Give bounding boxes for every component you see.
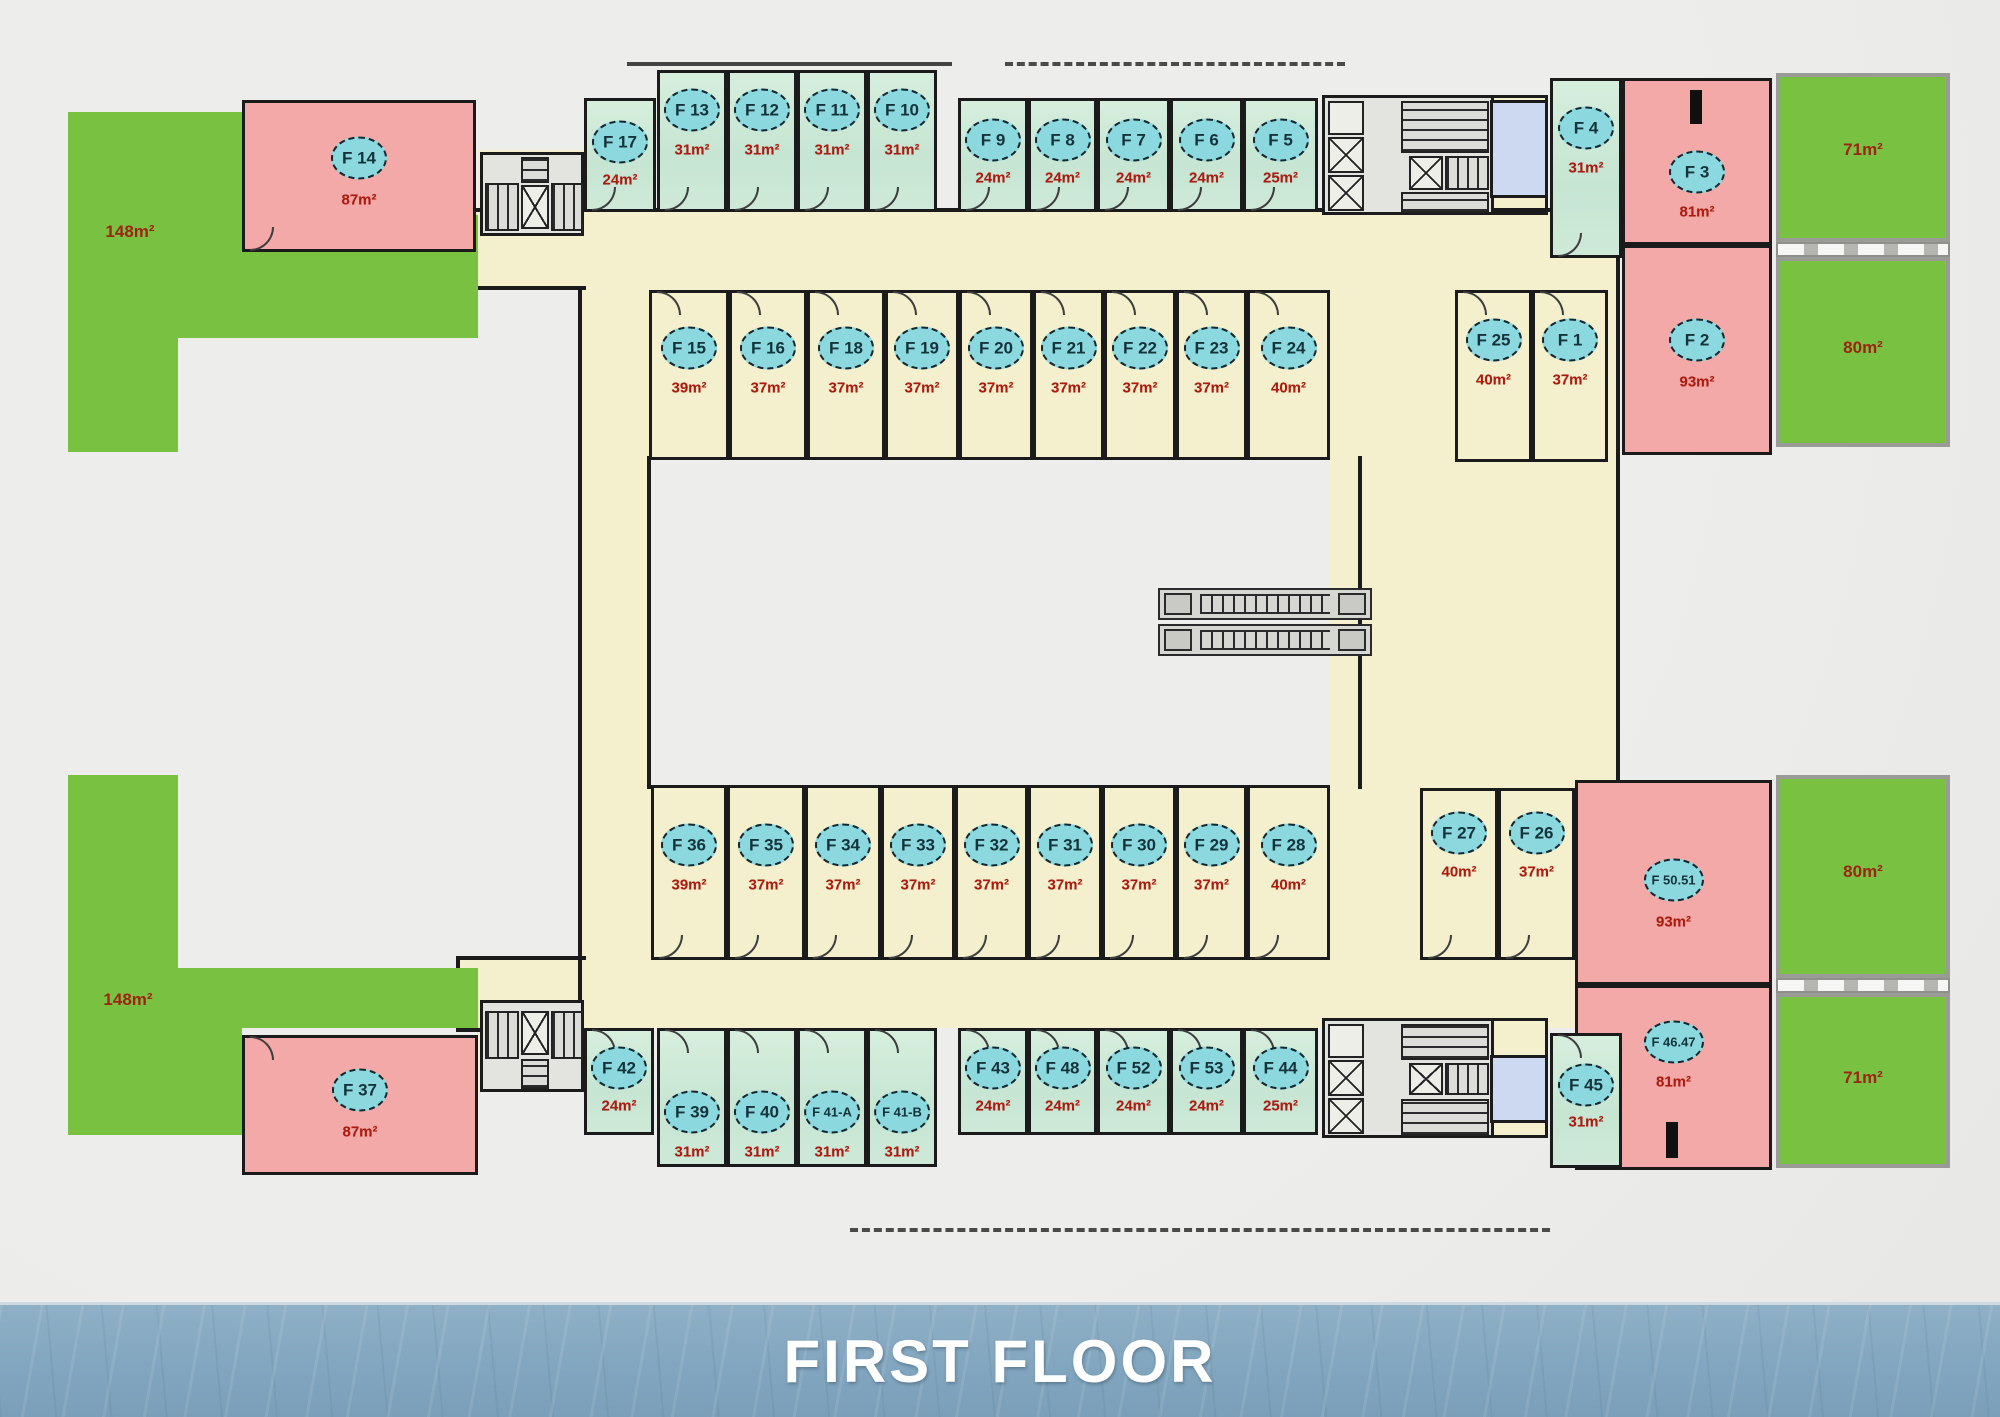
door-arc-icon <box>889 935 913 959</box>
stairs-icon <box>485 183 519 231</box>
unit-area-F18: 37m² <box>828 380 863 397</box>
door-arc-icon <box>1036 187 1060 211</box>
escalator-landing <box>1164 629 1192 651</box>
stairs-icon <box>1445 1063 1489 1095</box>
room-F31 <box>1028 785 1102 960</box>
unit-badge-F7: F 7 <box>1106 119 1162 162</box>
stairs-icon <box>1401 192 1489 213</box>
unit-badge-F18: F 18 <box>818 327 874 370</box>
service-room-top <box>1490 100 1548 198</box>
door-arc-icon <box>815 291 839 315</box>
unit-area-F11: 31m² <box>814 142 849 159</box>
unit-area-F41-B: 31m² <box>884 1144 919 1161</box>
elevator-icon <box>1328 175 1364 211</box>
wall-segment <box>456 956 586 960</box>
elevator-icon <box>521 185 549 229</box>
unit-area-F5: 25m² <box>1263 170 1298 187</box>
unit-area-F31: 37m² <box>1047 877 1082 894</box>
unit-badge-F16: F 16 <box>740 327 796 370</box>
elevator-shaft-icon <box>1328 1024 1364 1058</box>
room-F23 <box>1176 290 1247 460</box>
unit-badge-F43: F 43 <box>965 1047 1021 1090</box>
unit-area-F10: 31m² <box>884 142 919 159</box>
door-arc-icon <box>893 291 917 315</box>
room-F19 <box>885 290 959 460</box>
unit-area-F53: 24m² <box>1189 1098 1224 1115</box>
door-arc-icon <box>1255 291 1279 315</box>
unit-badge-F31: F 31 <box>1037 824 1093 867</box>
door-arc-icon <box>966 187 990 211</box>
room-F24 <box>1247 290 1330 460</box>
wall-pier <box>1690 90 1702 124</box>
unit-area-F35: 37m² <box>748 877 783 894</box>
balcony-divider <box>1776 978 1950 993</box>
unit-badge-F11: F 11 <box>804 89 860 132</box>
unit-area-F20: 37m² <box>978 380 1013 397</box>
wall-pier <box>1666 1122 1678 1158</box>
unit-badge-F21: F 21 <box>1040 327 1096 370</box>
service-room-bottom <box>1490 1055 1548 1123</box>
unit-area-F9: 24m² <box>975 170 1010 187</box>
unit-area-F40: 31m² <box>744 1144 779 1161</box>
elevator-icon <box>1409 156 1443 190</box>
unit-badge-F41-B: F 41-B <box>874 1091 930 1134</box>
stairs-icon <box>551 1011 583 1059</box>
floor-plan-canvas: 148m²148m²71m²80m²80m²71m²F 1487m²F 3787… <box>0 0 2000 1414</box>
room-F36 <box>651 785 727 960</box>
unit-badge-F8: F 8 <box>1035 119 1091 162</box>
page-title: FIRST FLOOR <box>784 1327 1217 1396</box>
unit-badge-F44: F 44 <box>1252 1047 1308 1090</box>
stairs-icon <box>485 1011 519 1059</box>
unit-badge-F9: F 9 <box>965 119 1021 162</box>
unit-area-F16: 37m² <box>750 380 785 397</box>
elevator-icon <box>1328 1098 1364 1134</box>
stair-core-bottom-left <box>480 1000 584 1092</box>
unit-area-F30: 37m² <box>1121 877 1156 894</box>
terrace-bottom-right-80-area-label: 80m² <box>1843 862 1883 882</box>
room-F29 <box>1176 785 1247 960</box>
escalator-landing <box>1164 593 1192 615</box>
unit-area-F17: 24m² <box>602 172 637 189</box>
unit-badge-F12: F 12 <box>734 89 790 132</box>
unit-badge-F4: F 4 <box>1558 107 1614 150</box>
terrace-top-left-area-label: 148m² <box>105 222 154 242</box>
door-arc-icon <box>1112 291 1136 315</box>
unit-badge-F37: F 37 <box>332 1069 388 1112</box>
escalator-landing <box>1338 629 1366 651</box>
unit-area-F52: 24m² <box>1116 1098 1151 1115</box>
terrace-bottom-left-area-label: 148m² <box>103 990 152 1010</box>
unit-area-F7: 24m² <box>1116 170 1151 187</box>
door-arc-icon <box>875 1029 899 1053</box>
escalator-steps <box>1200 594 1330 614</box>
unit-badge-F6: F 6 <box>1179 119 1235 162</box>
wall-segment <box>578 288 582 1032</box>
unit-badge-F15: F 15 <box>661 327 717 370</box>
unit-badge-F53: F 53 <box>1178 1047 1234 1090</box>
unit-area-F28: 40m² <box>1271 877 1306 894</box>
unit-area-F50.51: 93m² <box>1656 914 1691 931</box>
unit-area-F14: 87m² <box>341 192 376 209</box>
room-F32 <box>955 785 1028 960</box>
elevator-icon <box>521 1011 549 1055</box>
door-arc-icon <box>735 1029 759 1053</box>
terrace-top-right-80-area-label: 80m² <box>1843 338 1883 358</box>
unit-badge-F50.51: F 50.51 <box>1643 859 1703 902</box>
unit-badge-F25: F 25 <box>1465 319 1521 362</box>
stairs-icon <box>521 1059 549 1089</box>
door-arc-icon <box>735 187 759 211</box>
unit-area-F33: 37m² <box>900 877 935 894</box>
door-arc-icon <box>657 291 681 315</box>
unit-badge-F32: F 32 <box>963 824 1019 867</box>
unit-area-F41-A: 31m² <box>814 1144 849 1161</box>
door-arc-icon <box>665 1029 689 1053</box>
escalators <box>1158 588 1372 658</box>
door-arc-icon <box>963 935 987 959</box>
stair-core-top-left <box>480 152 584 236</box>
terrace-top-right-71-area-label: 71m² <box>1843 140 1883 160</box>
unit-badge-F24: F 24 <box>1260 327 1316 370</box>
door-arc-icon <box>1184 291 1208 315</box>
unit-area-F29: 37m² <box>1194 877 1229 894</box>
unit-area-F37: 87m² <box>342 1124 377 1141</box>
unit-badge-F33: F 33 <box>890 824 946 867</box>
unit-area-F1: 37m² <box>1552 372 1587 389</box>
room-F15 <box>649 290 729 460</box>
door-arc-icon <box>1558 1034 1582 1058</box>
escalator-steps <box>1200 630 1330 650</box>
escalator-icon <box>1158 624 1372 656</box>
unit-badge-F34: F 34 <box>815 824 871 867</box>
door-arc-icon <box>805 1029 829 1053</box>
door-arc-icon <box>1105 187 1129 211</box>
elevator-shaft-icon <box>1328 101 1364 135</box>
unit-area-F13: 31m² <box>674 142 709 159</box>
room-F34 <box>805 785 881 960</box>
unit-area-F46.47: 81m² <box>1656 1074 1691 1091</box>
balcony-divider <box>1776 242 1950 257</box>
unit-area-F3: 81m² <box>1679 204 1714 221</box>
stairs-icon <box>1401 1099 1489 1136</box>
room-F30 <box>1102 785 1176 960</box>
unit-badge-F17: F 17 <box>592 121 648 164</box>
unit-area-F32: 37m² <box>974 877 1009 894</box>
elevator-icon <box>1328 1060 1364 1096</box>
unit-area-F26: 37m² <box>1519 864 1554 881</box>
unit-area-F4: 31m² <box>1568 160 1603 177</box>
room-F18 <box>807 290 885 460</box>
elevator-icon <box>1409 1063 1443 1095</box>
unit-area-F8: 24m² <box>1045 170 1080 187</box>
room-F28 <box>1247 785 1330 960</box>
unit-area-F42: 24m² <box>601 1098 636 1115</box>
room-F21 <box>1033 290 1104 460</box>
unit-area-F48: 24m² <box>1045 1098 1080 1115</box>
door-arc-icon <box>1041 291 1065 315</box>
unit-badge-F41-A: F 41-A <box>804 1091 860 1134</box>
stairs-icon <box>1401 101 1489 153</box>
room-F20 <box>959 290 1033 460</box>
door-arc-icon <box>1251 187 1275 211</box>
unit-badge-F2: F 2 <box>1669 319 1725 362</box>
unit-area-F21: 37m² <box>1051 380 1086 397</box>
door-arc-icon <box>737 291 761 315</box>
unit-badge-F52: F 52 <box>1105 1047 1161 1090</box>
door-arc-icon <box>250 1036 274 1060</box>
corridor-left <box>582 212 651 1028</box>
door-arc-icon <box>1428 935 1452 959</box>
unit-area-F44: 25m² <box>1263 1098 1298 1115</box>
door-arc-icon <box>665 187 689 211</box>
door-arc-icon <box>592 187 616 211</box>
unit-area-F36: 39m² <box>671 877 706 894</box>
title-banner: FIRST FLOOR <box>0 1302 2000 1417</box>
canopy-line <box>627 62 952 66</box>
unit-badge-F39: F 39 <box>664 1091 720 1134</box>
unit-area-F23: 37m² <box>1194 380 1229 397</box>
unit-badge-F46.47: F 46.47 <box>1643 1021 1703 1064</box>
unit-area-F12: 31m² <box>744 142 779 159</box>
unit-area-F15: 39m² <box>671 380 706 397</box>
room-F16 <box>729 290 807 460</box>
door-arc-icon <box>735 935 759 959</box>
unit-badge-F10: F 10 <box>874 89 930 132</box>
door-arc-icon <box>805 187 829 211</box>
unit-badge-F13: F 13 <box>664 89 720 132</box>
canopy-dashed-line-bottom <box>850 1228 1550 1232</box>
stairs-icon <box>521 157 549 183</box>
stair-core-top-right <box>1322 95 1494 215</box>
terrace-bottom-right-71-area-label: 71m² <box>1843 1068 1883 1088</box>
unit-area-F39: 31m² <box>674 1144 709 1161</box>
unit-badge-F42: F 42 <box>591 1047 647 1090</box>
escalator-icon <box>1158 588 1372 620</box>
door-arc-icon <box>967 291 991 315</box>
unit-area-F25: 40m² <box>1476 372 1511 389</box>
unit-badge-F26: F 26 <box>1508 812 1564 855</box>
unit-area-F2: 93m² <box>1679 374 1714 391</box>
door-arc-icon <box>813 935 837 959</box>
unit-badge-F30: F 30 <box>1111 824 1167 867</box>
unit-badge-F28: F 28 <box>1260 824 1316 867</box>
stairs-icon <box>1401 1024 1489 1060</box>
wall-segment <box>647 456 651 789</box>
door-arc-icon <box>250 227 274 251</box>
unit-area-F45: 31m² <box>1568 1114 1603 1131</box>
stairs-icon <box>551 183 583 231</box>
door-arc-icon <box>1255 935 1279 959</box>
unit-area-F34: 37m² <box>825 877 860 894</box>
stairs-icon <box>1445 156 1489 190</box>
room-F35 <box>727 785 805 960</box>
unit-area-F27: 40m² <box>1441 864 1476 881</box>
unit-badge-F14: F 14 <box>331 137 387 180</box>
door-arc-icon <box>1506 935 1530 959</box>
room-F22 <box>1104 290 1176 460</box>
unit-badge-F36: F 36 <box>661 824 717 867</box>
unit-badge-F1: F 1 <box>1542 319 1598 362</box>
room-F33 <box>881 785 955 960</box>
unit-area-F24: 40m² <box>1271 380 1306 397</box>
unit-area-F22: 37m² <box>1122 380 1157 397</box>
unit-badge-F27: F 27 <box>1431 812 1487 855</box>
unit-area-F19: 37m² <box>904 380 939 397</box>
unit-badge-F19: F 19 <box>894 327 950 370</box>
unit-badge-F48: F 48 <box>1034 1047 1090 1090</box>
door-arc-icon <box>1184 935 1208 959</box>
unit-area-F6: 24m² <box>1189 170 1224 187</box>
unit-badge-F40: F 40 <box>734 1091 790 1134</box>
door-arc-icon <box>1558 233 1582 257</box>
unit-badge-F29: F 29 <box>1183 824 1239 867</box>
canopy-dashed-line-top <box>1005 62 1345 66</box>
unit-badge-F45: F 45 <box>1558 1064 1614 1107</box>
door-arc-icon <box>875 187 899 211</box>
door-arc-icon <box>1110 935 1134 959</box>
unit-badge-F35: F 35 <box>738 824 794 867</box>
unit-badge-F23: F 23 <box>1183 327 1239 370</box>
door-arc-icon <box>1178 187 1202 211</box>
escalator-landing <box>1338 593 1366 615</box>
elevator-icon <box>1328 137 1364 173</box>
unit-badge-F3: F 3 <box>1669 151 1725 194</box>
stair-core-bottom-right <box>1322 1018 1494 1138</box>
door-arc-icon <box>1540 291 1564 315</box>
door-arc-icon <box>659 935 683 959</box>
unit-badge-F20: F 20 <box>968 327 1024 370</box>
door-arc-icon <box>1463 291 1487 315</box>
unit-badge-F5: F 5 <box>1253 119 1309 162</box>
unit-badge-F22: F 22 <box>1112 327 1168 370</box>
door-arc-icon <box>1036 935 1060 959</box>
unit-area-F43: 24m² <box>975 1098 1010 1115</box>
